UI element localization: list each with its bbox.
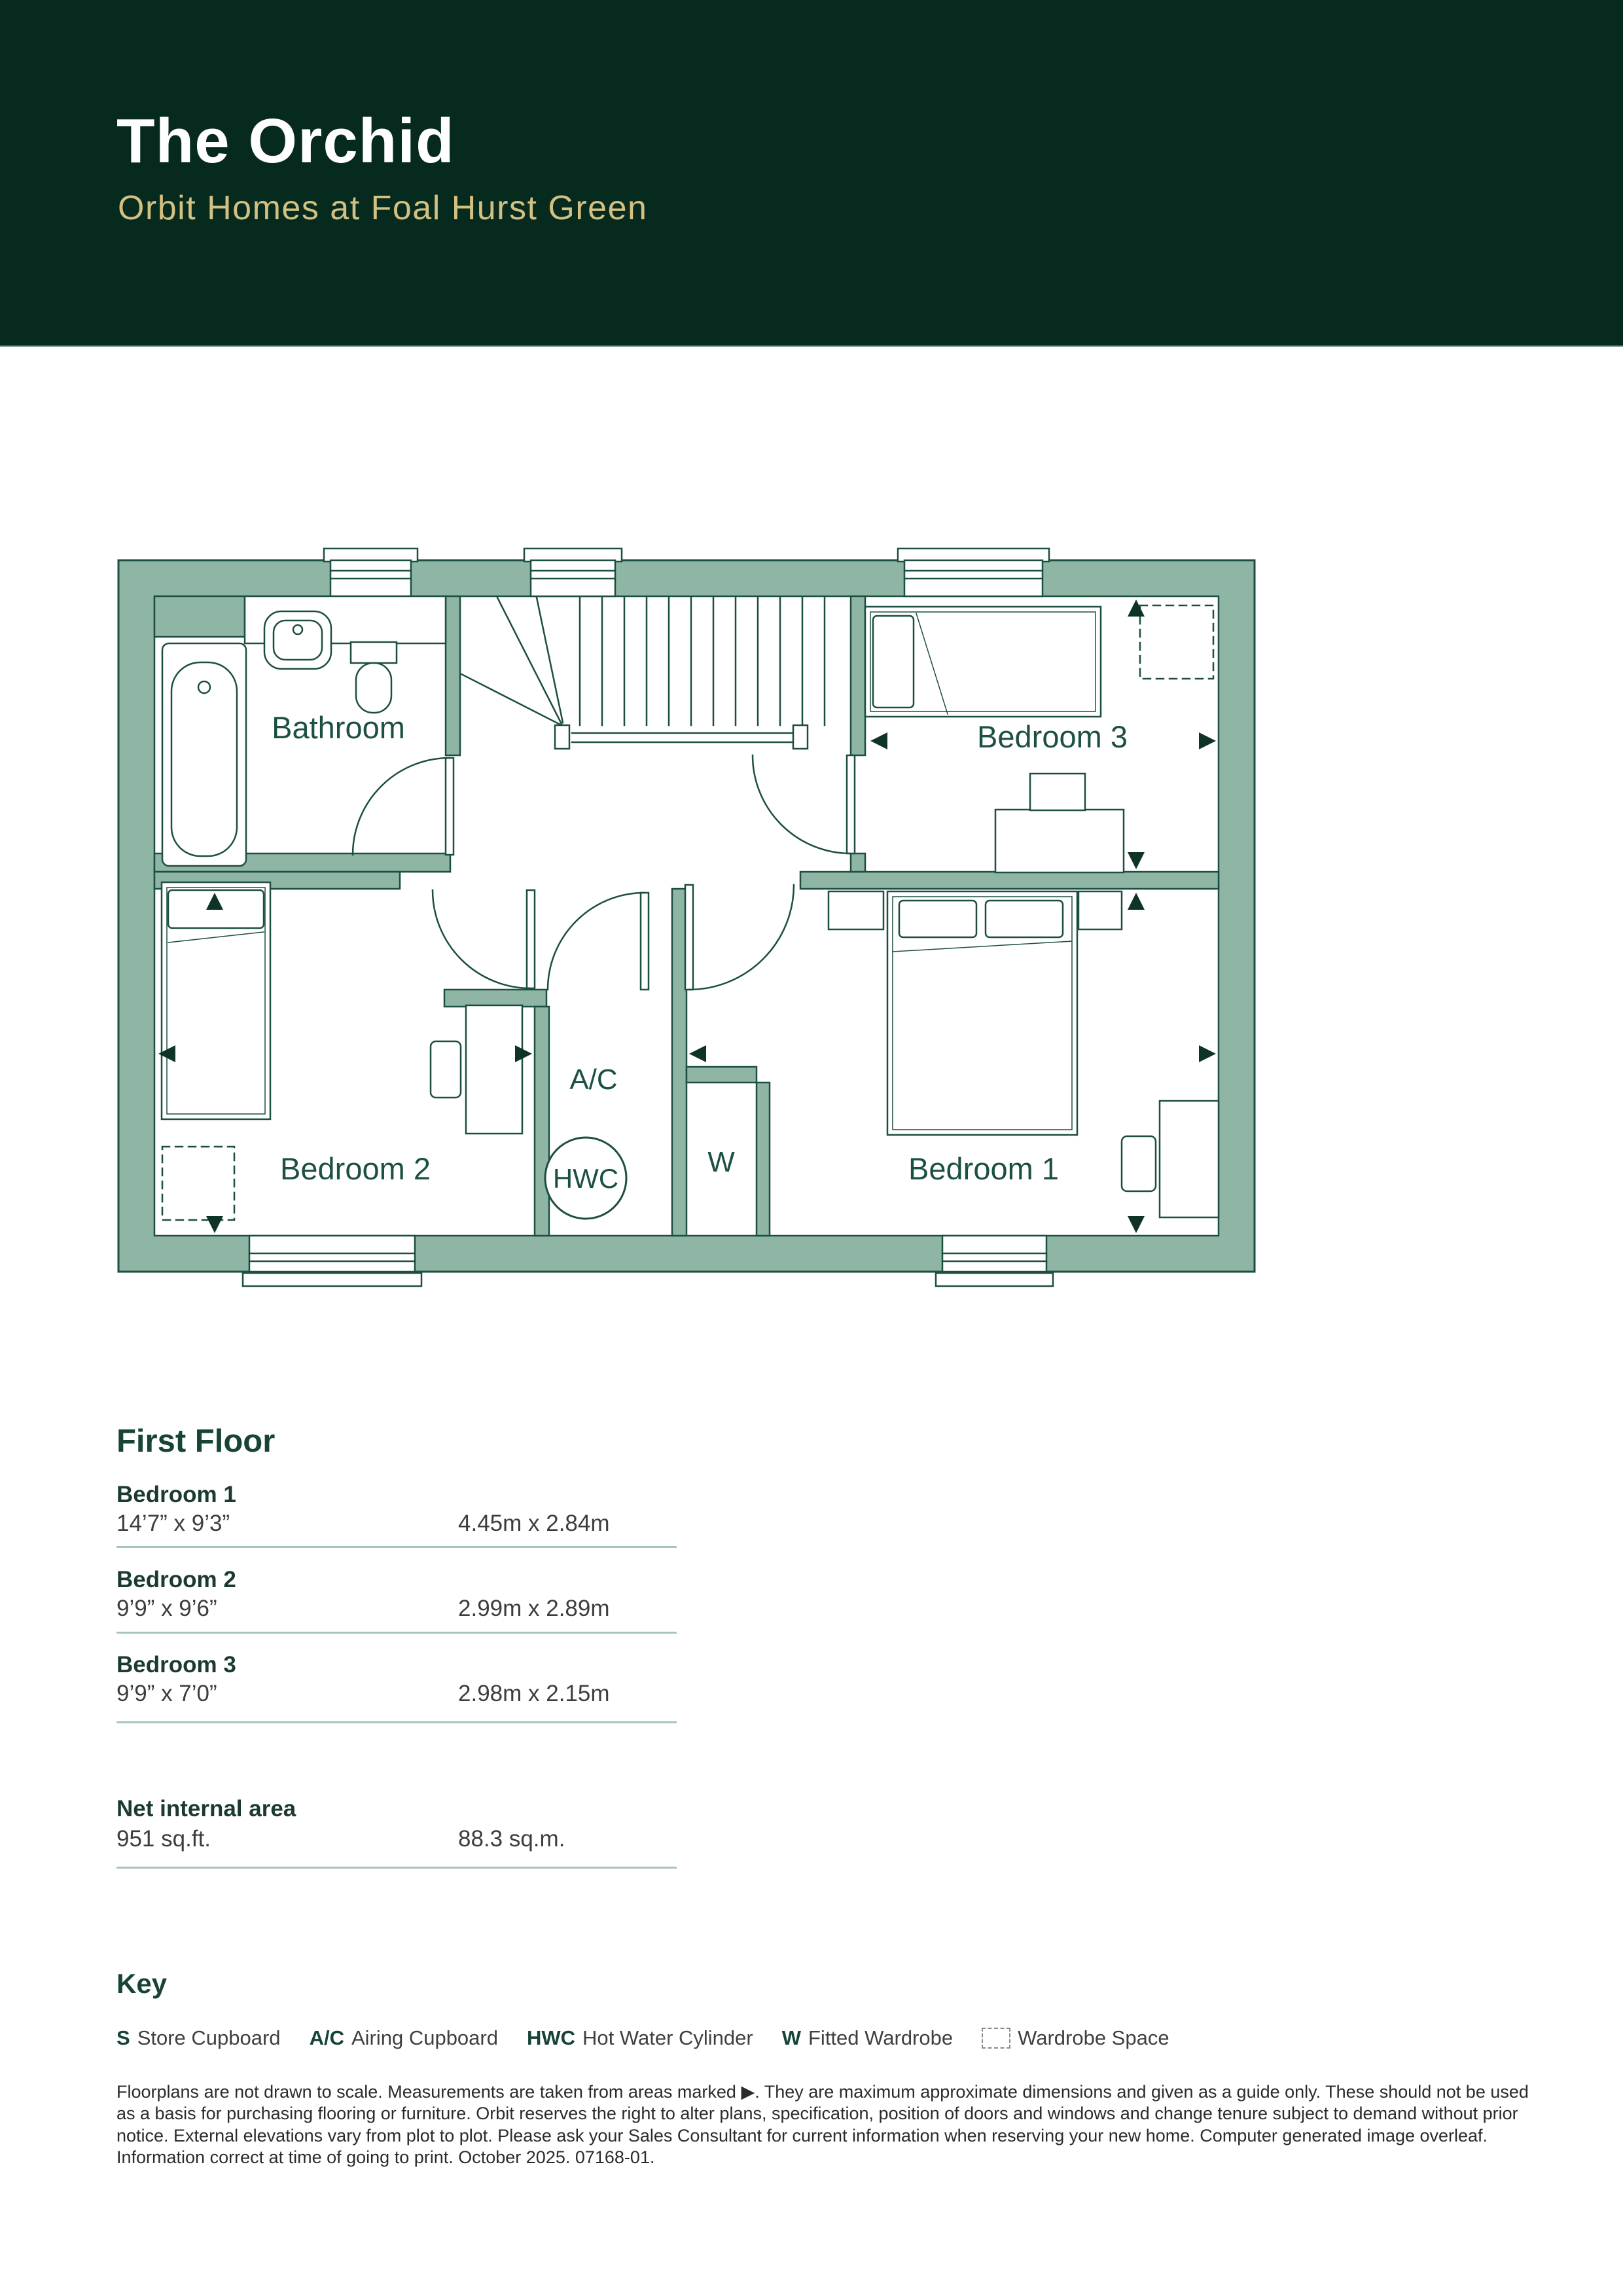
- room-row-dims: 14’7” x 9’3” 4.45m x 2.84m: [116, 1512, 679, 1535]
- divider: [116, 1867, 677, 1869]
- dim-imperial: 9’9” x 9’6”: [116, 1596, 217, 1621]
- key-item: S Store Cupboard: [116, 2026, 281, 2050]
- key-item: A/C Airing Cupboard: [310, 2026, 498, 2050]
- key-label: Wardrobe Space: [1018, 2026, 1169, 2050]
- dim-imperial: 9’9” x 7’0”: [116, 1681, 217, 1706]
- room-row-name: Bedroom 3: [116, 1653, 236, 1676]
- dim-imperial: 14’7” x 9’3”: [116, 1511, 230, 1536]
- key-item: HWC Hot Water Cylinder: [527, 2026, 753, 2050]
- key-item: W Fitted Wardrobe: [782, 2026, 953, 2050]
- divider: [116, 1546, 677, 1548]
- key-abbr: A/C: [310, 2026, 344, 2050]
- room-label-wardrobe: W: [707, 1146, 735, 1178]
- disclaimer-text: Floorplans are not drawn to scale. Measu…: [116, 2081, 1547, 2169]
- key-abbr: S: [116, 2026, 130, 2050]
- brochure-page: The Orchid Orbit Homes at Foal Hurst Gre…: [0, 0, 1623, 2296]
- key-label: Hot Water Cylinder: [582, 2026, 753, 2050]
- room-row-name: Bedroom 1: [116, 1483, 236, 1506]
- room-label-bathroom: Bathroom: [272, 710, 405, 745]
- key-label: Fitted Wardrobe: [808, 2026, 953, 2050]
- key-abbr: HWC: [527, 2026, 575, 2050]
- net-area-values: 951 sq.ft. 88.3 sq.m.: [116, 1827, 679, 1850]
- room-row-name: Bedroom 2: [116, 1568, 236, 1591]
- room-label-bedroom3: Bedroom 3: [977, 719, 1128, 754]
- toilet: [351, 642, 397, 713]
- net-area-label: Net internal area: [116, 1797, 296, 1820]
- room-label-airing: A/C: [569, 1064, 617, 1096]
- wardrobe-space-icon: [982, 2028, 1010, 2049]
- key-label: Store Cupboard: [137, 2026, 281, 2050]
- room-row-dims: 9’9” x 7’0” 2.98m x 2.15m: [116, 1682, 679, 1705]
- room-label-bedroom1: Bedroom 1: [908, 1151, 1059, 1186]
- divider: [116, 1721, 677, 1723]
- floorplan: Bathroom Bedroom 3 Bedroom 2 Bedroom 1 A…: [0, 0, 1623, 2296]
- key-title: Key: [116, 1970, 167, 1998]
- dim-metric: 2.98m x 2.15m: [458, 1682, 610, 1705]
- dim-metric: 4.45m x 2.84m: [458, 1512, 610, 1535]
- room-label-bedroom2: Bedroom 2: [280, 1151, 431, 1186]
- bathtub: [162, 643, 246, 866]
- key-row: S Store Cupboard A/C Airing Cupboard HWC…: [116, 2026, 1169, 2050]
- net-metric: 88.3 sq.m.: [458, 1827, 565, 1850]
- room-label-hwc: HWC: [553, 1163, 618, 1194]
- room-row-dims: 9’9” x 9’6” 2.99m x 2.89m: [116, 1597, 679, 1620]
- key-abbr: W: [782, 2026, 801, 2050]
- floor-title: First Floor: [116, 1426, 275, 1458]
- divider: [116, 1632, 677, 1634]
- key-item: Wardrobe Space: [982, 2026, 1169, 2050]
- key-label: Airing Cupboard: [351, 2026, 498, 2050]
- net-imperial: 951 sq.ft.: [116, 1826, 211, 1852]
- dim-metric: 2.99m x 2.89m: [458, 1597, 610, 1620]
